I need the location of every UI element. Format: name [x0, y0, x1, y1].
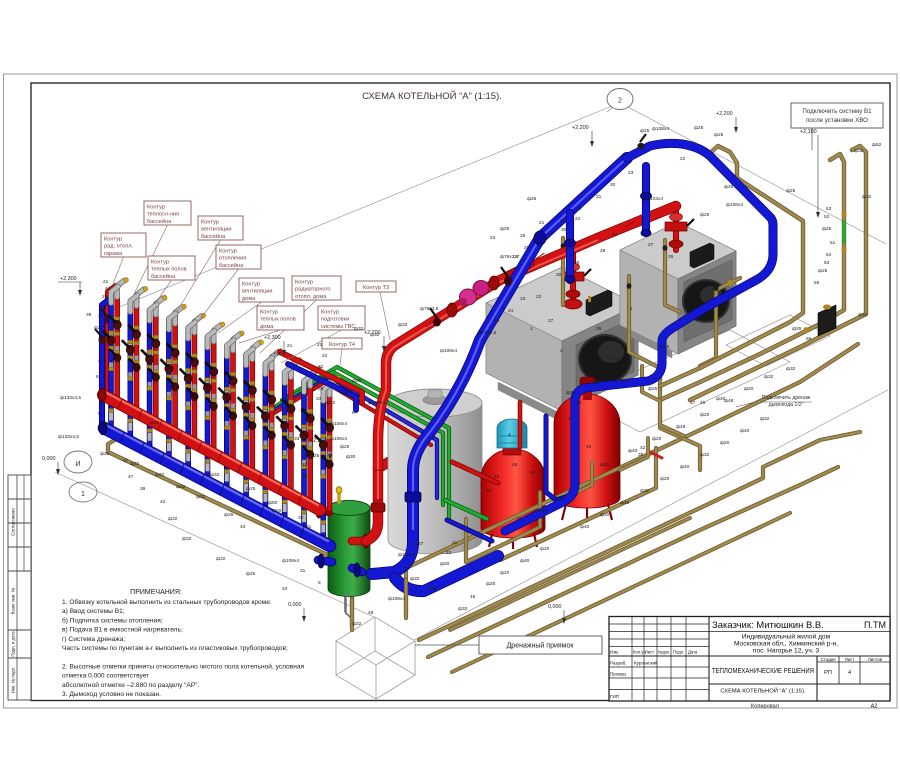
svg-text:39: 39	[140, 486, 146, 492]
svg-text:32: 32	[318, 364, 324, 370]
svg-text:21: 21	[103, 279, 109, 285]
svg-text:Московская обл., Химкинский р-: Московская обл., Химкинский р-н,	[734, 640, 838, 648]
svg-text:32: 32	[298, 515, 304, 521]
svg-text:ф108х4: ф108х4	[368, 400, 385, 406]
svg-text:28: 28	[494, 318, 500, 324]
svg-text:49: 49	[586, 444, 592, 450]
svg-text:ф32: ф32	[760, 416, 770, 422]
svg-text:ф76х3,5: ф76х3,5	[420, 306, 439, 312]
svg-text:55: 55	[814, 280, 820, 286]
svg-text:бассейна: бассейна	[151, 273, 176, 280]
svg-text:подготовки: подготовки	[321, 317, 349, 323]
svg-text:4: 4	[848, 670, 851, 676]
svg-text:ф32: ф32	[344, 389, 354, 395]
svg-text:ф32: ф32	[600, 462, 610, 468]
svg-text:ф30: ф30	[346, 454, 356, 460]
svg-text:24: 24	[508, 308, 514, 314]
svg-text:Контур: Контур	[151, 260, 169, 266]
svg-text:45: 45	[512, 462, 518, 468]
svg-text:ф25: ф25	[724, 184, 734, 190]
svg-text:ф20: ф20	[744, 386, 754, 392]
svg-text:31: 31	[306, 524, 312, 530]
svg-text:6: 6	[352, 410, 355, 416]
svg-text:2: 2	[618, 98, 622, 105]
svg-text:радиаторного: радиаторного	[295, 287, 331, 293]
svg-text:48: 48	[700, 400, 706, 406]
svg-text:ПРИМЕЧАНИЯ:: ПРИМЕЧАНИЯ:	[130, 589, 182, 596]
svg-text:ф108х4: ф108х4	[330, 436, 347, 442]
svg-text:ф25: ф25	[648, 386, 658, 392]
svg-text:ф40: ф40	[620, 500, 630, 506]
svg-text:Подп.: Подп.	[673, 650, 684, 655]
svg-text:г) Система дренажа;: г) Система дренажа;	[62, 636, 125, 643]
svg-text:27: 27	[548, 230, 554, 236]
svg-text:22: 22	[612, 232, 618, 238]
svg-text:ф20: ф20	[440, 561, 450, 567]
svg-text:48: 48	[470, 594, 476, 600]
svg-text:ф48: ф48	[676, 424, 686, 430]
svg-text:дома: дома	[260, 324, 274, 330]
svg-text:ф32: ф32	[700, 452, 710, 458]
svg-text:ф15: ф15	[660, 344, 670, 350]
svg-text:ф25: ф25	[100, 451, 110, 457]
svg-text:23: 23	[520, 296, 526, 302]
svg-text:49: 49	[486, 488, 492, 494]
svg-text:ф32: ф32	[764, 374, 774, 380]
svg-text:Лист: Лист	[645, 650, 654, 655]
svg-text:4: 4	[568, 416, 571, 422]
svg-text:ф32: ф32	[196, 494, 206, 500]
svg-text:47: 47	[123, 458, 129, 464]
svg-text:29: 29	[520, 233, 526, 239]
svg-text:4: 4	[508, 432, 511, 438]
svg-text:ф25: ф25	[822, 226, 832, 232]
svg-text:53: 53	[824, 260, 830, 266]
svg-text:после установки ХВО: после установки ХВО	[806, 117, 868, 124]
svg-text:29: 29	[574, 260, 580, 266]
svg-text:отметка 0.000 соответствует: отметка 0.000 соответствует	[62, 673, 149, 680]
svg-text:21: 21	[539, 220, 545, 226]
svg-text:38: 38	[98, 337, 104, 343]
svg-text:рад. отопл.: рад. отопл.	[104, 244, 133, 250]
svg-text:31: 31	[300, 568, 306, 574]
svg-text:ф52: ф52	[872, 142, 882, 148]
svg-text:ф108х4: ф108х4	[440, 348, 457, 354]
svg-text:51: 51	[830, 240, 836, 246]
svg-text:23: 23	[490, 235, 496, 241]
svg-text:Взам. инв. №: Взам. инв. №	[11, 587, 16, 614]
svg-text:отопл. дома: отопл. дома	[295, 294, 327, 300]
svg-text:ф40: ф40	[428, 586, 438, 592]
svg-text:Дата: Дата	[688, 650, 698, 655]
svg-text:8: 8	[96, 374, 99, 380]
svg-text:Контур: Контур	[242, 282, 260, 288]
svg-text:ф25: ф25	[340, 444, 350, 450]
svg-text:ф133х4,5: ф133х4,5	[60, 395, 81, 401]
svg-text:ф108х4: ф108х4	[282, 558, 299, 564]
svg-text:21: 21	[287, 343, 293, 349]
svg-text:ф25: ф25	[500, 226, 510, 232]
svg-text:ф40: ф40	[520, 558, 530, 564]
svg-text:ф32: ф32	[398, 322, 408, 328]
svg-text:ф32: ф32	[210, 472, 220, 478]
svg-text:ф20: ф20	[652, 436, 662, 442]
svg-text:ф25: ф25	[714, 132, 724, 138]
svg-text:Контур: Контур	[295, 280, 313, 286]
svg-text:0,000: 0,000	[288, 602, 302, 608]
svg-text:1: 1	[530, 326, 533, 332]
svg-text:СХЕМА КОТЕЛЬНОЙ “А” (1:15).: СХЕМА КОТЕЛЬНОЙ “А” (1:15).	[720, 687, 806, 695]
svg-text:А2: А2	[871, 704, 878, 710]
svg-text:ф76х3,5: ф76х3,5	[500, 254, 519, 260]
svg-text:Подключить дренаж: Подключить дренаж	[762, 395, 811, 401]
svg-text:отопления: отопления	[219, 256, 246, 262]
svg-text:ф20: ф20	[500, 570, 510, 576]
svg-text:+2,100: +2,100	[800, 129, 817, 135]
svg-text:ф103х4: ф103х4	[646, 196, 663, 202]
svg-text:Кол.уч: Кол.уч	[633, 650, 646, 655]
svg-text:42: 42	[640, 445, 646, 451]
svg-text:+2,200: +2,200	[310, 438, 327, 444]
svg-text:28: 28	[600, 248, 606, 254]
svg-text:42: 42	[320, 375, 326, 381]
svg-text:42: 42	[302, 474, 308, 480]
svg-text:+2,200: +2,200	[716, 111, 733, 117]
svg-text:Контур Т3: Контур Т3	[363, 285, 389, 291]
svg-text:22: 22	[322, 353, 328, 359]
svg-text:9: 9	[98, 411, 101, 417]
svg-text:21: 21	[596, 194, 602, 200]
svg-text:2. Высотные отметки приняты от: 2. Высотные отметки приняты относительно…	[62, 662, 305, 670]
svg-text:ТЕПЛОМЕХАНИЧЕСКИЕ РЕШЕНИЯ: ТЕПЛОМЕХАНИЧЕСКИЕ РЕШЕНИЯ	[712, 666, 814, 675]
svg-text:39: 39	[86, 312, 92, 318]
svg-text:45: 45	[404, 566, 410, 572]
svg-text:53: 53	[826, 206, 832, 212]
svg-text:Дренажный приямок: Дренажный приямок	[507, 642, 575, 650]
svg-text:ф20: ф20	[566, 390, 576, 396]
svg-text:ф40: ф40	[680, 464, 690, 470]
svg-text:6,3: 6,3	[274, 351, 281, 357]
svg-text:ф40: ф40	[580, 524, 590, 530]
svg-text:49: 49	[530, 470, 536, 476]
svg-text:в) Подача В1 в емкостной нагре: в) Подача В1 в емкостной нагреватель;	[62, 626, 183, 634]
svg-text:пос. Нагорье 12, уч. 3: пос. Нагорье 12, уч. 3	[753, 648, 820, 655]
svg-text:дымохода 1/2”: дымохода 1/2”	[769, 402, 804, 408]
svg-text:+2,200: +2,200	[572, 125, 589, 131]
svg-text:30: 30	[556, 272, 562, 278]
svg-text:21: 21	[317, 342, 323, 348]
svg-text:33: 33	[98, 313, 104, 319]
svg-text:бассейна: бассейна	[219, 262, 244, 269]
svg-text:ф25: ф25	[246, 486, 256, 492]
svg-text:23: 23	[628, 170, 634, 176]
svg-text:22: 22	[575, 216, 581, 222]
svg-text:ф32: ф32	[538, 508, 548, 514]
svg-text:ф25: ф25	[610, 356, 620, 362]
svg-text:ф32: ф32	[410, 576, 420, 582]
svg-text:44: 44	[105, 286, 111, 292]
svg-text:3: 3	[560, 348, 563, 354]
svg-text:27: 27	[548, 318, 554, 324]
svg-text:ф50: ф50	[268, 500, 278, 506]
svg-text:ф133х4,5: ф133х4,5	[58, 434, 79, 440]
svg-text:42: 42	[98, 358, 104, 364]
svg-text:ф37: ф37	[414, 541, 424, 547]
svg-text:РП: РП	[824, 670, 832, 676]
svg-text:Контур Т4: Контур Т4	[329, 342, 355, 348]
svg-text:54: 54	[826, 252, 832, 258]
svg-text:гаража: гаража	[104, 251, 123, 257]
svg-text:3. Дымоход условно не показан.: 3. Дымоход условно не показан.	[62, 691, 161, 698]
svg-text:теплосн-ния: теплосн-ния	[147, 212, 179, 218]
svg-text:35: 35	[638, 452, 644, 458]
svg-text:21: 21	[452, 540, 458, 546]
svg-text:ф32: ф32	[786, 366, 796, 372]
svg-text:№док.: №док.	[658, 650, 670, 655]
svg-text:23: 23	[592, 380, 598, 386]
svg-text:ф25: ф25	[352, 378, 362, 384]
svg-text:Лист: Лист	[845, 657, 855, 662]
svg-text:системы ГВС: системы ГВС	[321, 324, 355, 330]
svg-text:ф32: ф32	[352, 621, 362, 627]
svg-text:ф20: ф20	[720, 440, 730, 446]
svg-text:0,000: 0,000	[548, 604, 562, 610]
svg-text:48: 48	[368, 610, 374, 616]
svg-text:вентиляции: вентиляции	[201, 227, 232, 233]
svg-text:Инв. № подл.: Инв. № подл.	[11, 667, 16, 694]
svg-text:Подключить систему В1: Подключить систему В1	[802, 108, 872, 115]
svg-text:ф48: ф48	[724, 398, 734, 404]
svg-text:ф20: ф20	[600, 512, 610, 518]
svg-text:22: 22	[680, 156, 686, 162]
svg-text:ф20: ф20	[660, 476, 670, 482]
svg-text:вентиляции: вентиляции	[242, 289, 273, 295]
svg-text:Заказчик: Митюшкин В.В.: Заказчик: Митюшкин В.В.	[712, 620, 824, 631]
svg-text:28: 28	[524, 245, 530, 251]
svg-text:39: 39	[318, 386, 324, 392]
svg-text:Копировал: Копировал	[751, 704, 779, 710]
svg-text:56: 56	[806, 336, 812, 342]
svg-text:ф32: ф32	[94, 325, 104, 331]
svg-text:ф25: ф25	[150, 420, 160, 426]
svg-text:бассейна: бассейна	[147, 218, 172, 225]
svg-text:33: 33	[294, 436, 300, 442]
svg-text:ф25: ф25	[640, 128, 650, 134]
svg-text:33: 33	[316, 396, 322, 402]
svg-text:Стадия: Стадия	[821, 657, 837, 662]
svg-text:ф32: ф32	[370, 332, 380, 338]
svg-text:ф32: ф32	[862, 194, 872, 200]
svg-text:ф108х4: ф108х4	[388, 596, 405, 602]
svg-text:П.ТМ: П.ТМ	[864, 620, 886, 630]
svg-text:ф25: ф25	[694, 125, 704, 131]
svg-text:52: 52	[824, 214, 830, 220]
svg-text:ф32: ф32	[554, 496, 564, 502]
svg-text:Контур: Контур	[219, 249, 237, 255]
svg-text:44: 44	[100, 401, 106, 407]
svg-text:ф25: ф25	[792, 326, 802, 332]
svg-text:Контур: Контур	[321, 310, 339, 316]
svg-text:ф32: ф32	[216, 556, 226, 562]
svg-text:Изм.: Изм.	[610, 650, 619, 655]
svg-text:43: 43	[240, 524, 246, 530]
svg-text:23: 23	[446, 550, 452, 556]
svg-text:22: 22	[536, 294, 542, 300]
svg-text:ф108х4: ф108х4	[398, 552, 415, 558]
svg-text:+2,300: +2,300	[264, 335, 281, 341]
svg-text:ф76х3,5: ф76х3,5	[478, 330, 497, 336]
svg-text:30: 30	[610, 182, 616, 188]
svg-text:ф20: ф20	[540, 546, 550, 552]
svg-text:Индивидуальный жилой дом: Индивидуальный жилой дом	[742, 633, 831, 641]
svg-text:абсолютной отметке –2.880 по р: абсолютной отметке –2.880 по разделу “АР…	[62, 681, 199, 689]
svg-text:48: 48	[516, 516, 522, 522]
svg-text:5: 5	[318, 580, 321, 586]
svg-text:ф32: ф32	[854, 148, 864, 154]
svg-text:ф108х4: ф108х4	[330, 421, 347, 427]
svg-text:Разраб.: Разраб.	[610, 661, 627, 666]
svg-text:ф108х4: ф108х4	[652, 126, 669, 132]
svg-text:Контур: Контур	[104, 237, 122, 243]
svg-text:+2,300: +2,300	[60, 276, 77, 282]
svg-text:42: 42	[160, 499, 166, 505]
svg-text:21: 21	[586, 372, 592, 378]
svg-text:29: 29	[576, 206, 582, 212]
svg-text:Часть системы по пунктам а-г в: Часть системы по пунктам а-г выполнить и…	[62, 644, 288, 652]
svg-text:ф25: ф25	[224, 512, 234, 518]
svg-text:теплых полов: теплых полов	[260, 317, 296, 323]
svg-text:ф32: ф32	[155, 472, 165, 478]
svg-text:ф40: ф40	[740, 428, 750, 434]
svg-text:23: 23	[576, 400, 582, 406]
svg-text:0,000: 0,000	[42, 456, 56, 462]
svg-text:ф25: ф25	[620, 378, 630, 384]
svg-text:1. Обвязку котельной выполнить: 1. Обвязку котельной выполнить из стальн…	[62, 598, 272, 606]
svg-text:46: 46	[99, 305, 105, 311]
svg-text:ф32: ф32	[640, 488, 650, 494]
svg-text:Контур: Контур	[201, 220, 219, 226]
svg-text:1: 1	[630, 306, 633, 312]
svg-text:ф20: ф20	[700, 412, 710, 418]
svg-text:ГИП: ГИП	[610, 694, 619, 699]
svg-text:47: 47	[128, 474, 134, 480]
svg-text:26: 26	[668, 254, 674, 260]
svg-text:47: 47	[104, 422, 110, 428]
svg-text:Согласовано: Согласовано	[11, 508, 16, 536]
svg-text:ф25: ф25	[818, 268, 828, 274]
svg-text:ф32: ф32	[458, 606, 468, 612]
svg-text:бассейна: бассейна	[201, 233, 226, 240]
svg-text:11: 11	[302, 462, 307, 468]
svg-text:дома: дома	[242, 296, 256, 302]
svg-text:27: 27	[648, 242, 654, 248]
svg-text:28: 28	[560, 218, 566, 224]
svg-text:Провер.: Провер.	[610, 672, 627, 677]
svg-text:ф25: ф25	[786, 188, 796, 194]
svg-text:ф50: ф50	[272, 508, 282, 514]
svg-text:а) Ввод системы В1;: а) Ввод системы В1;	[62, 608, 125, 615]
svg-text:ф25: ф25	[527, 196, 537, 202]
svg-text:ф32: ф32	[168, 516, 178, 522]
svg-text:И: И	[75, 461, 80, 468]
svg-text:46: 46	[494, 474, 500, 480]
svg-text:Контур: Контур	[260, 310, 278, 316]
svg-text:ф32: ф32	[858, 312, 868, 318]
svg-text:ф32: ф32	[354, 326, 364, 332]
svg-text:ф32: ф32	[182, 536, 192, 542]
svg-text:Контур: Контур	[147, 205, 165, 211]
svg-text:СХЕМА КОТЕЛЬНОЙ “А” (1:15).: СХЕМА КОТЕЛЬНОЙ “А” (1:15).	[362, 90, 502, 102]
svg-text:б) Подпитка системы отопления;: б) Подпитка системы отопления;	[62, 616, 163, 624]
svg-text:1: 1	[81, 491, 85, 498]
svg-text:Курганский: Курганский	[634, 660, 658, 666]
svg-text:ф32: ф32	[326, 400, 336, 406]
svg-text:30: 30	[561, 227, 567, 233]
svg-text:теплых полов: теплых полов	[151, 267, 187, 273]
svg-text:ф32: ф32	[130, 461, 140, 467]
svg-text:43: 43	[282, 586, 288, 592]
svg-text:26: 26	[596, 326, 602, 332]
svg-text:47: 47	[690, 400, 696, 406]
svg-text:ф108х4: ф108х4	[726, 202, 743, 208]
svg-text:ф25: ф25	[310, 453, 320, 459]
svg-text:13: 13	[300, 408, 306, 414]
svg-text:Листов: Листов	[868, 657, 883, 662]
svg-text:ф20: ф20	[486, 581, 496, 587]
svg-text:ф25: ф25	[700, 212, 710, 218]
svg-text:ф25: ф25	[246, 571, 256, 577]
svg-text:2: 2	[583, 356, 586, 362]
svg-text:ф32: ф32	[176, 484, 186, 490]
svg-text:22: 22	[102, 294, 108, 300]
svg-text:ф40: ф40	[628, 448, 638, 454]
svg-text:Подп. и дата: Подп. и дата	[11, 631, 16, 657]
